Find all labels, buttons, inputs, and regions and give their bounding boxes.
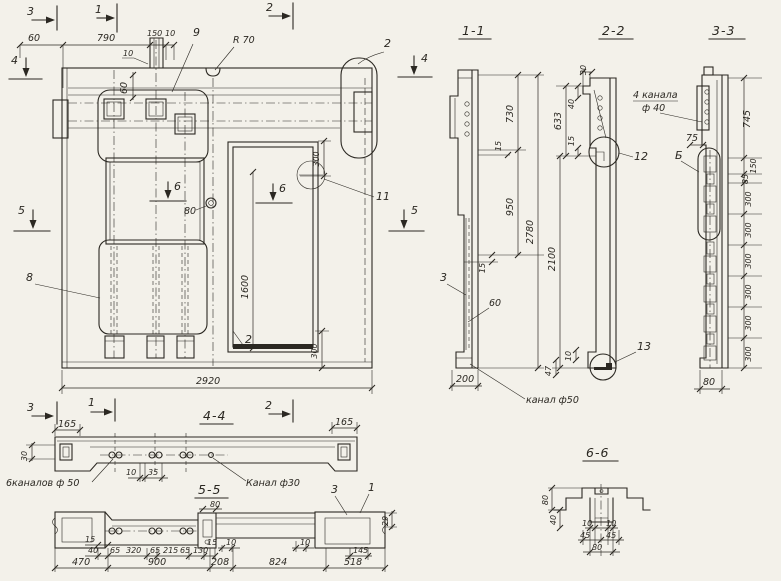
section-2-2: 2-2 30 40 633 15 2100 10 <box>544 23 651 380</box>
section-6-6: 6-6 80 40 10 10 45 45 80 <box>541 445 650 556</box>
dim-10-leader: 10 <box>123 49 133 58</box>
marker-5-right: 5 <box>411 204 418 217</box>
dim-633: 633 <box>553 112 564 130</box>
dim-200: 200 <box>456 374 474 385</box>
dim-10: 10 <box>564 351 573 361</box>
dim-900: 900 <box>148 557 166 568</box>
left-end-block <box>55 512 105 548</box>
dim-2780: 2780 <box>525 220 536 244</box>
dim-r1-10b: 10 <box>300 538 310 547</box>
square-holes <box>104 99 195 134</box>
dim-r1-65c: 65 <box>180 546 190 555</box>
part-8: 8 <box>26 271 33 284</box>
dim-30: 30 <box>579 65 588 75</box>
part-3: 3 <box>440 271 447 284</box>
section-2-2-title: 2-2 <box>602 23 625 38</box>
marker-2-top: 2 <box>266 1 273 14</box>
note-kanal-30: Канал ф30 <box>246 478 300 489</box>
dim-165-right: 165 <box>335 417 353 428</box>
note-kanal-50: канал ф50 <box>526 395 579 406</box>
dim-2100: 2100 <box>547 247 558 271</box>
edge-block <box>53 100 68 138</box>
dim-40: 40 <box>567 99 576 109</box>
dim-47: 47 <box>544 365 553 376</box>
dim-1600: 1600 <box>240 275 251 299</box>
plan-body <box>55 437 357 471</box>
dim-300-4: 300 <box>744 284 753 299</box>
dim-300-5: 300 <box>744 315 753 330</box>
marker-2-bottom: 2 <box>265 399 272 412</box>
right-end-block <box>315 512 385 548</box>
note-4-kanala: 4 канала <box>633 90 678 101</box>
part-1-55: 1 <box>368 481 375 494</box>
part-11: 11 <box>376 190 390 203</box>
section-3-3: 3-3 4 канала ф 40 75 Б <box>633 23 762 394</box>
dim-r1-15: 15 <box>85 535 95 544</box>
dim-150: 150 <box>749 158 758 173</box>
note-6-kanalov: 6каналов ф 50 <box>6 478 79 489</box>
marker-5-left: 5 <box>18 204 25 217</box>
dim-45a: 45 <box>580 531 590 540</box>
r70-notch <box>206 68 220 76</box>
dim-29: 29 <box>381 516 390 526</box>
dim-518: 518 <box>344 557 362 568</box>
dim-r1-10a: 10 <box>226 538 236 547</box>
dim-80-bottom-66: 80 <box>592 543 602 552</box>
section-4-4: 3 1 2 4-4 165 165 <box>6 396 360 489</box>
dim-300-2: 300 <box>744 222 753 237</box>
door-opening <box>228 142 318 352</box>
part-2-door: 2 <box>245 333 252 346</box>
dim-15b: 15 <box>478 263 487 273</box>
part-12: 12 <box>634 150 648 163</box>
label-r70: R 70 <box>233 35 255 46</box>
dim-790: 790 <box>97 33 115 44</box>
ribs <box>111 246 188 334</box>
panel-outline <box>62 68 372 368</box>
dim-45b: 45 <box>606 531 616 540</box>
dim-15: 15 <box>567 136 576 146</box>
section-4-4-title: 4-4 <box>203 408 226 423</box>
dim-208: 208 <box>211 557 229 568</box>
dim-80-bottom: 80 <box>703 377 715 388</box>
hole-80 <box>206 198 216 208</box>
panel-drawing: 60 790 150 10 10 60 R 70 300 300 1600 80… <box>0 0 781 581</box>
profile-6-6 <box>554 488 650 510</box>
dim-745: 745 <box>742 110 753 128</box>
main-dimensions: 60 790 150 10 10 60 R 70 300 300 1600 80… <box>17 29 375 394</box>
anchor-holes-1-1 <box>465 102 469 136</box>
dim-2920: 2920 <box>196 376 220 387</box>
dim-10b: 10 <box>606 519 616 528</box>
dim-300-bot: 300 <box>310 343 319 358</box>
dim-300-top: 300 <box>312 151 321 166</box>
dim-80-55: 80 <box>210 500 220 509</box>
section-3-3-title: 3-3 <box>712 23 735 38</box>
part-9: 9 <box>193 26 200 39</box>
dim-r1-320: 320 <box>126 546 141 555</box>
main-view <box>53 38 377 368</box>
section-6-6-title: 6-6 <box>586 445 609 460</box>
marker-4-right: 4 <box>421 52 428 65</box>
marker-6-right: 6 <box>279 182 286 195</box>
dim-r1-40: 40 <box>88 546 98 555</box>
drawing-sheet: 60 790 150 10 10 60 R 70 300 300 1600 80… <box>0 0 781 581</box>
dim-10: 10 <box>165 29 175 38</box>
dim-r1-65b: 65 <box>150 546 160 555</box>
dim-35-plan: 35 <box>148 468 158 477</box>
section-1-1: 1-1 730 15 950 15 2780 60 3 200 канал ф5… <box>440 23 579 406</box>
section-1-1-title: 1-1 <box>462 23 485 38</box>
dim-470: 470 <box>72 557 90 568</box>
dim-30-plan: 30 <box>20 451 29 461</box>
dim-60-leader: 60 <box>489 298 501 309</box>
marker-3-bottom: 3 <box>27 401 34 414</box>
dim-r1-15b: 15 <box>207 538 217 547</box>
dim-40: 40 <box>549 515 558 525</box>
note-f40: ф 40 <box>642 103 665 114</box>
section-5-5: 5-5 80 29 <box>52 481 397 572</box>
part-13: 13 <box>637 340 651 353</box>
marker-4-left: 4 <box>11 54 18 67</box>
dim-15a: 15 <box>494 141 503 151</box>
dim-950: 950 <box>505 198 516 216</box>
dim-r1-65a: 65 <box>110 546 120 555</box>
marker-1-top: 1 <box>95 3 102 16</box>
section-markers: 3 1 2 4 5 4 5 6 6 <box>9 1 432 231</box>
part-3-55: 3 <box>331 483 338 496</box>
dim-165-left: 165 <box>58 419 76 430</box>
dim-r1-215: 215 <box>163 546 178 555</box>
dim-150: 150 <box>147 29 162 38</box>
dim-300-3: 300 <box>744 253 753 268</box>
dim-r1-130: 130 <box>193 546 208 555</box>
dim-10a: 10 <box>582 519 592 528</box>
upper-recess <box>98 90 208 162</box>
marker-6-left: 6 <box>174 180 181 193</box>
part-2-top: 2 <box>384 37 391 50</box>
dim-60v: 60 <box>119 82 130 94</box>
label-b: Б <box>675 149 683 162</box>
feet <box>105 336 194 358</box>
dim-85: 85 <box>741 174 750 184</box>
dim-730: 730 <box>505 105 516 123</box>
dim-80-left: 80 <box>541 495 550 505</box>
dim-300-1: 300 <box>744 191 753 206</box>
dim-824: 824 <box>269 557 287 568</box>
marker-1-bottom: 1 <box>88 396 95 409</box>
dim-r1-145: 145 <box>353 546 368 555</box>
dim-300-6: 300 <box>744 346 753 361</box>
dim-80: 80 <box>184 206 196 217</box>
dim-10-plan: 10 <box>126 468 136 477</box>
section-5-5-title: 5-5 <box>198 482 221 497</box>
dim-60: 60 <box>28 33 40 44</box>
bracket-3-3 <box>697 86 709 130</box>
marker-3-top: 3 <box>27 5 34 18</box>
